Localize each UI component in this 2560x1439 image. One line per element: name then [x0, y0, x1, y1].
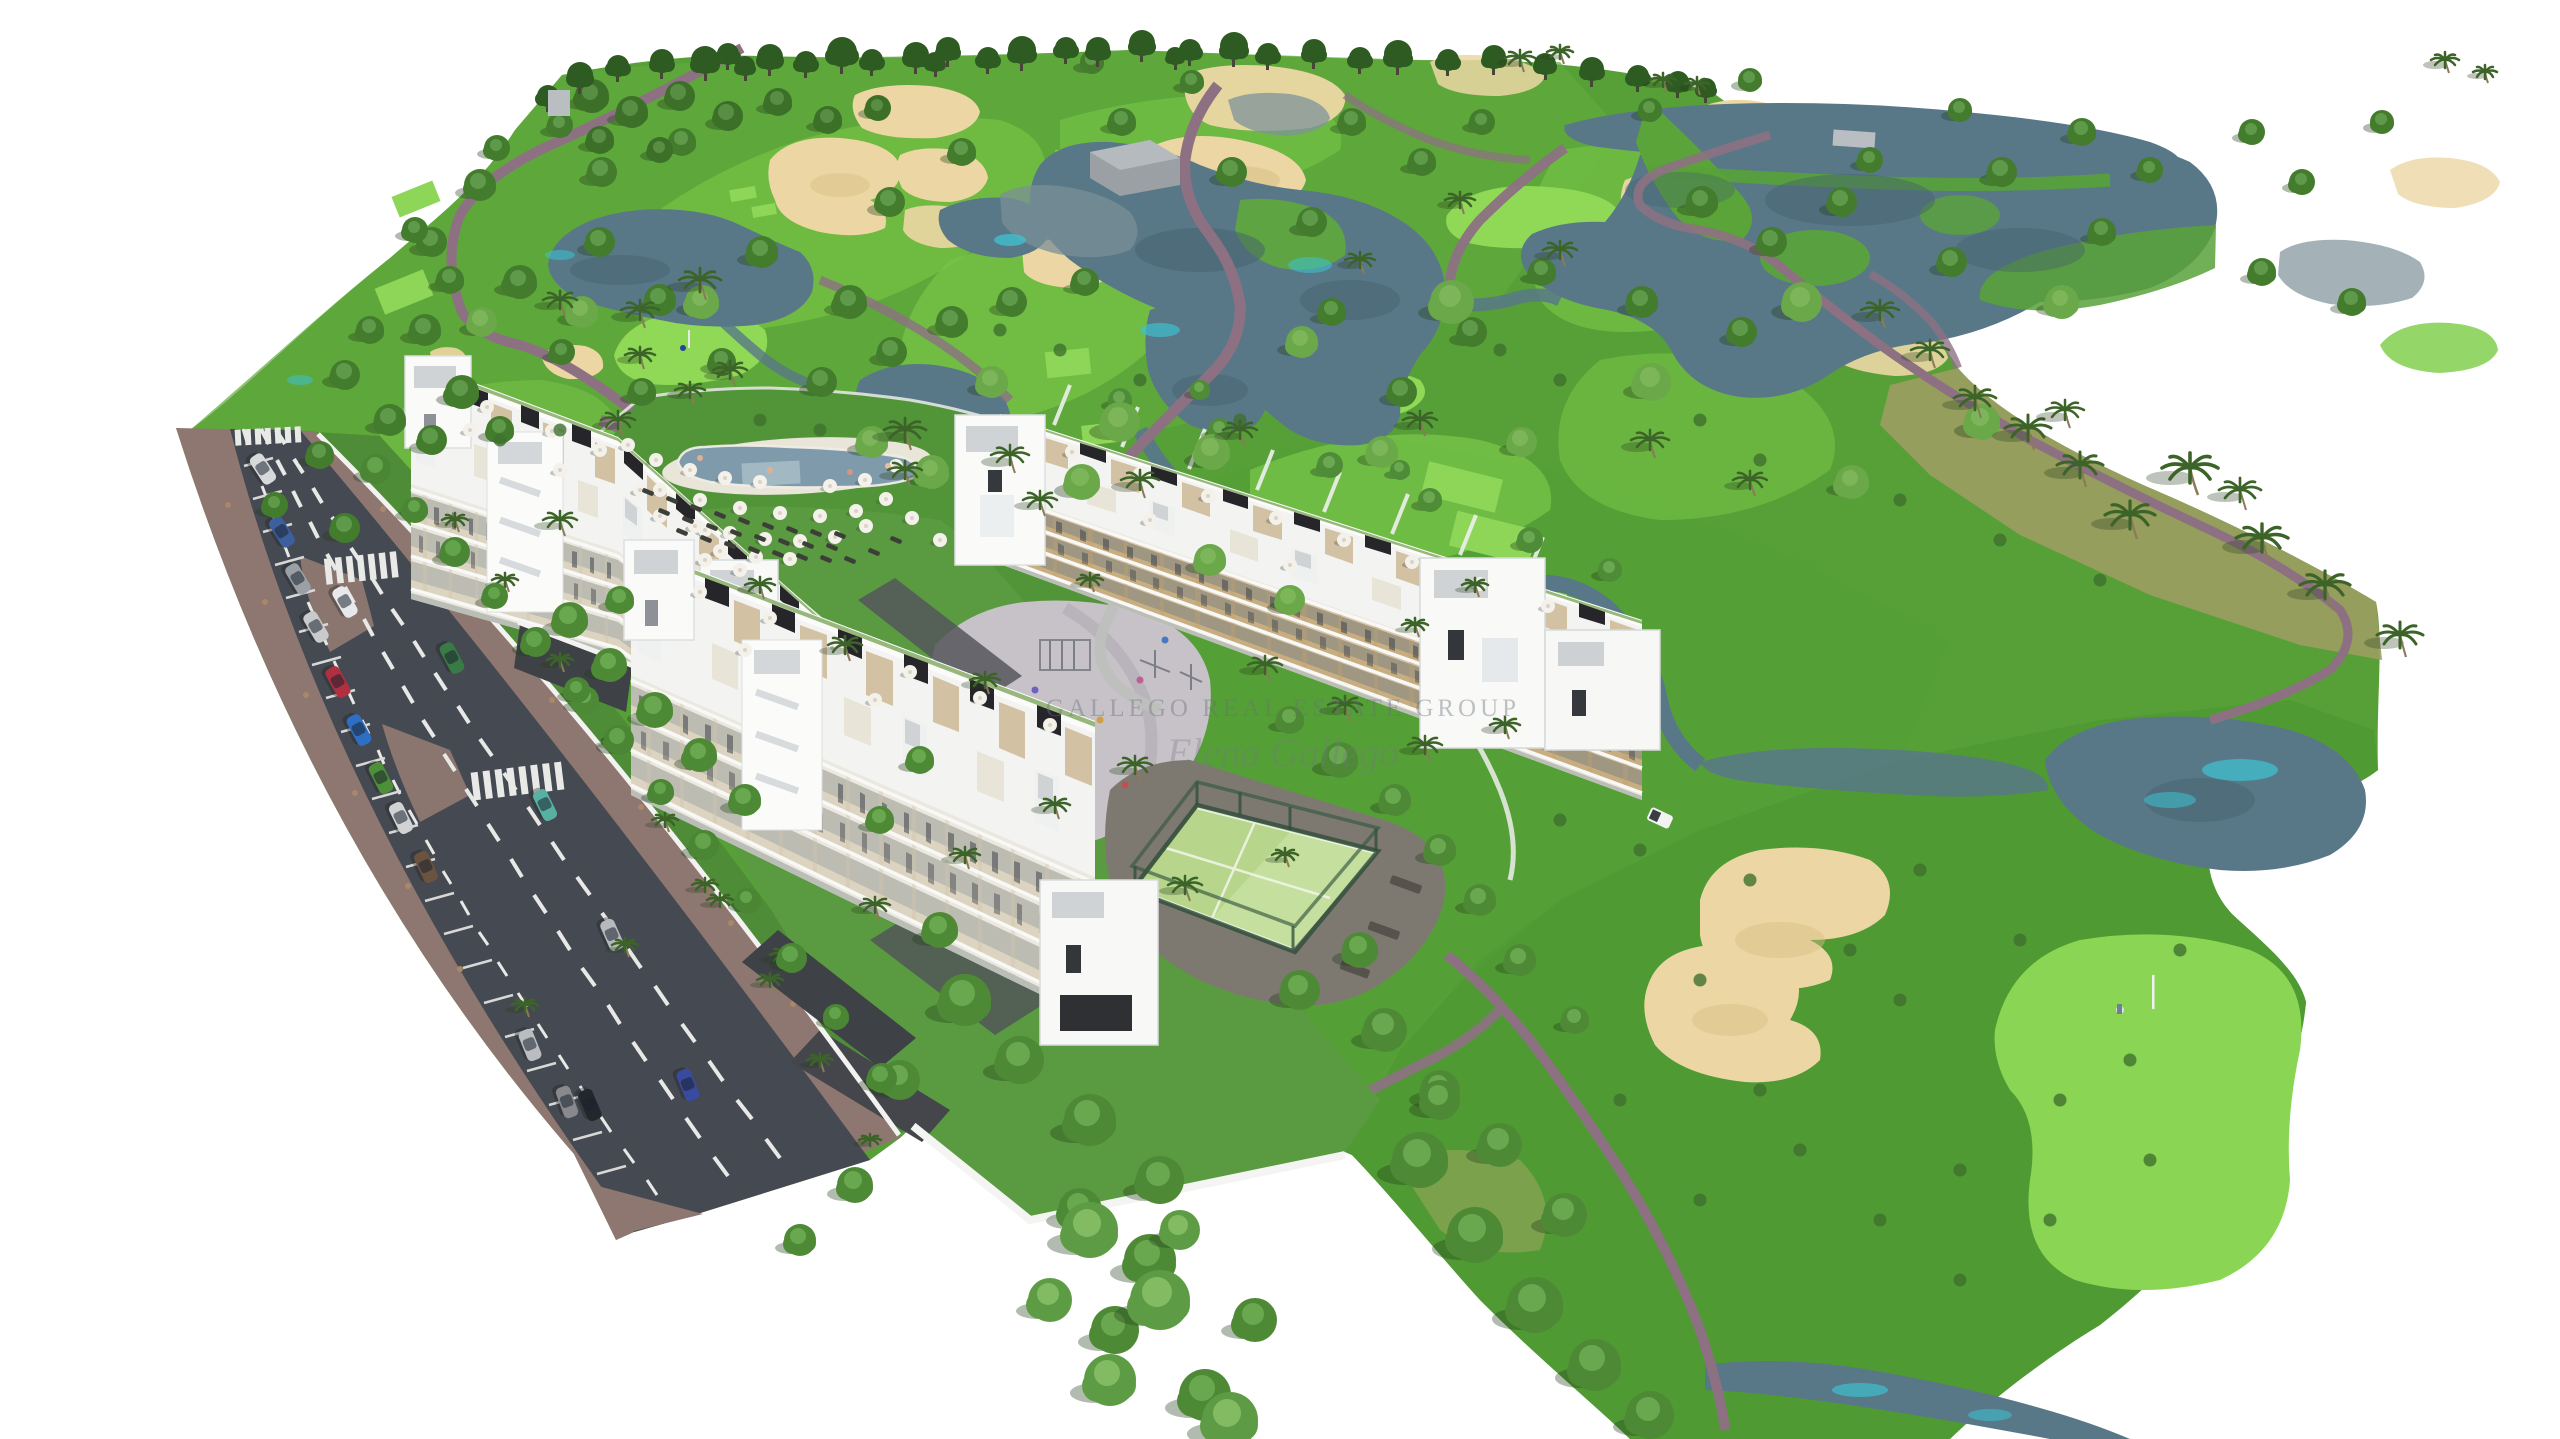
svg-text:GALLEGO REAL ESTATE GROUP: GALLEGO REAL ESTATE GROUP [1046, 695, 1520, 722]
svg-text:Elena Gallego: Elena Gallego [1166, 730, 1399, 775]
